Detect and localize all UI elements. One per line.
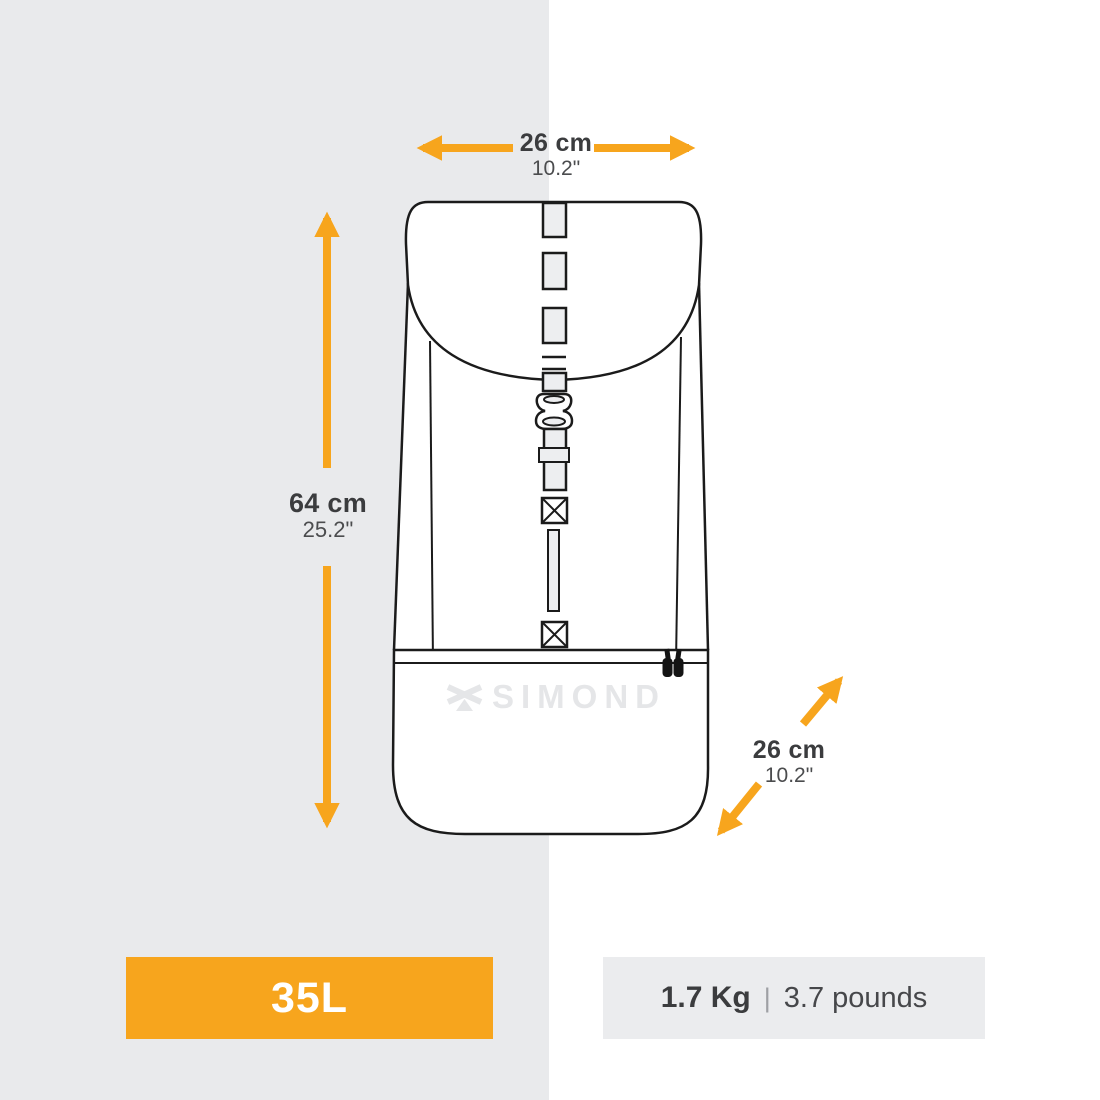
strap-keeper	[539, 448, 569, 462]
backpack-illustration	[393, 202, 708, 834]
width-inch-value: 10.2"	[520, 157, 592, 181]
depth-arrow-up	[803, 681, 839, 724]
weight-pounds-value: 3.7 pounds	[784, 982, 928, 1015]
height-cm-value: 64 cm	[289, 488, 367, 518]
depth-arrow-down	[721, 784, 759, 831]
height-inch-value: 25.2"	[289, 518, 367, 543]
buckle-icon	[536, 394, 572, 429]
lash-square-upper	[542, 498, 567, 523]
width-dimension-label: 26 cm 10.2"	[520, 129, 592, 181]
center-strap-loops	[543, 203, 566, 343]
height-dimension-label: 64 cm 25.2"	[289, 488, 367, 543]
width-cm-value: 26 cm	[520, 129, 592, 157]
volume-value: 35L	[271, 974, 348, 1023]
brand-watermark: SIMOND	[446, 680, 666, 713]
brand-logo-text: SIMOND	[492, 680, 666, 713]
strap-above-buckle	[543, 373, 566, 391]
depth-cm-value: 26 cm	[753, 736, 825, 764]
brand-logo-icon	[446, 681, 483, 712]
weight-kg-value: 1.7 Kg	[661, 981, 751, 1015]
lash-strap	[548, 530, 559, 611]
volume-badge: 35L	[126, 957, 493, 1039]
weight-badge: 1.7 Kg | 3.7 pounds	[603, 957, 985, 1039]
depth-inch-value: 10.2"	[753, 764, 825, 788]
weight-separator: |	[764, 983, 771, 1014]
depth-dimension-label: 26 cm 10.2"	[753, 736, 825, 788]
lash-square-lower	[542, 622, 567, 647]
